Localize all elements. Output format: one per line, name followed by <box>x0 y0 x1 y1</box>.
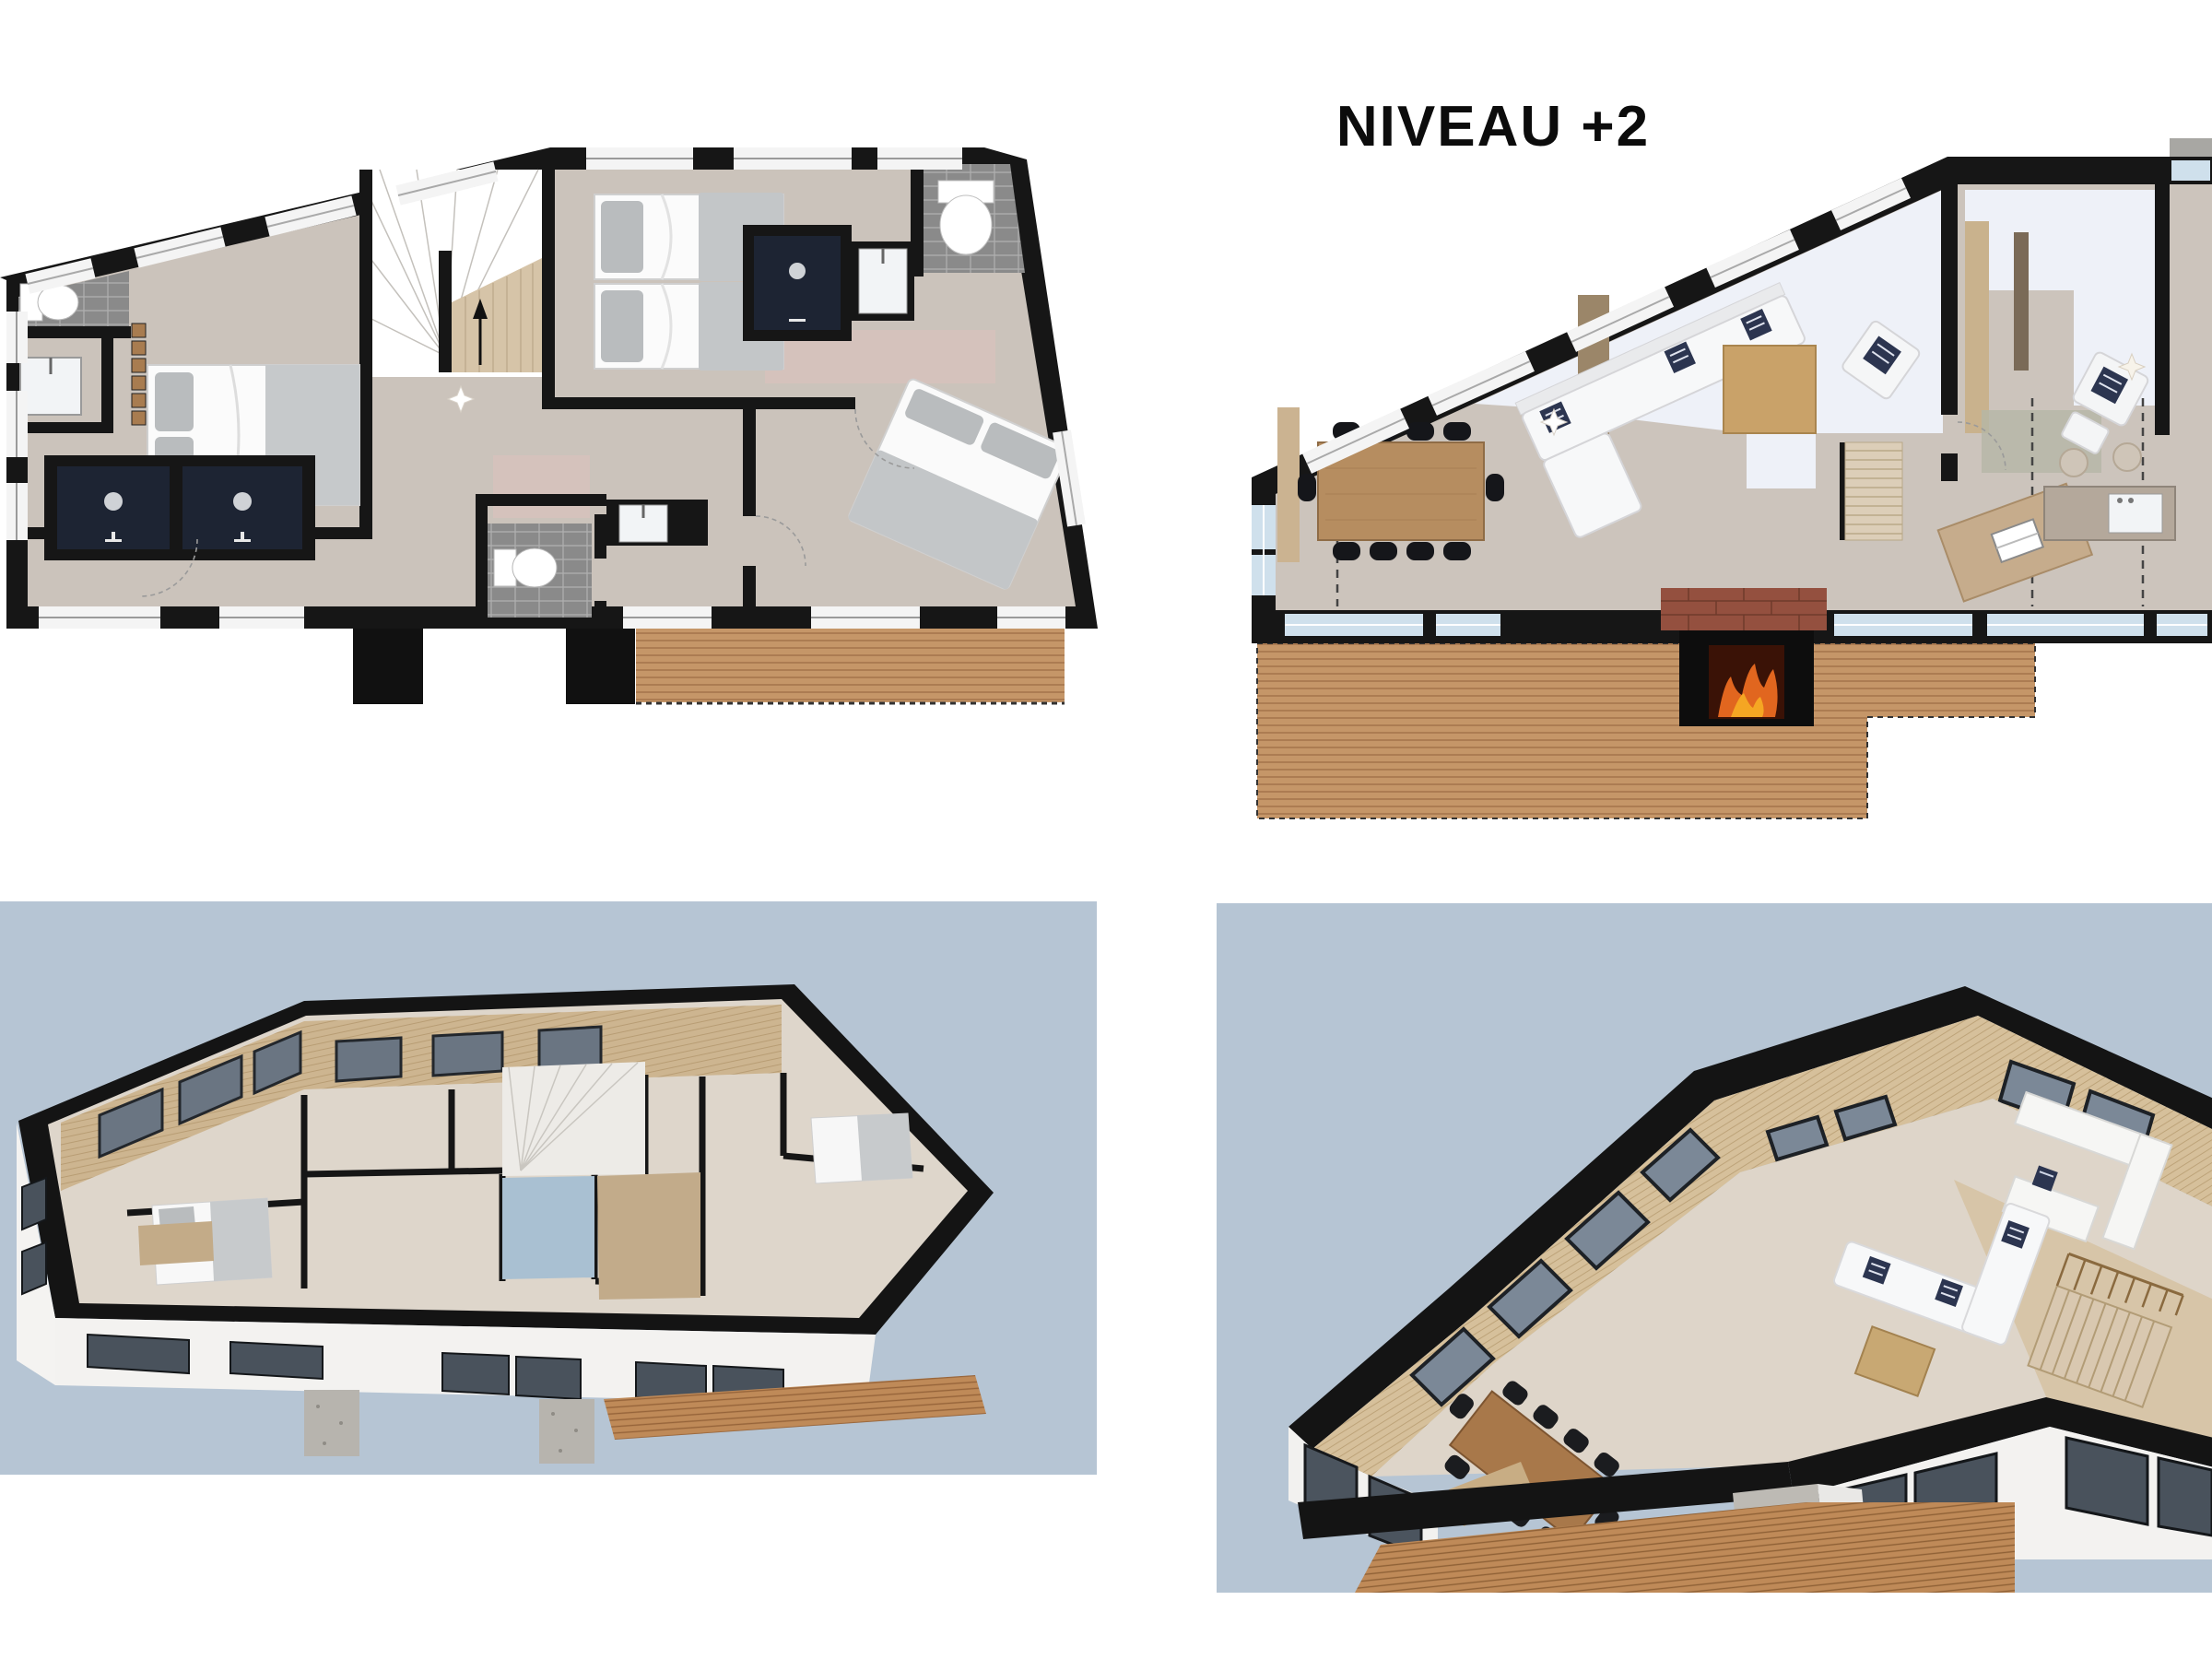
stairs-down <box>1840 442 1902 540</box>
sink-icon <box>852 241 914 321</box>
corner-shower <box>743 225 852 341</box>
hall-wood-floor <box>597 1172 700 1300</box>
wood-deck <box>636 629 1065 703</box>
render-3d-living-level <box>1217 903 2212 1594</box>
toilet-icon <box>938 181 994 254</box>
shower-cabins <box>44 455 315 560</box>
bed <box>811 1113 912 1183</box>
sink-icon <box>606 500 708 546</box>
coffee-table <box>1724 346 1816 433</box>
toilet-icon <box>494 548 557 587</box>
sink-icon <box>20 358 81 415</box>
floor-plan-sheet: NIVEAU +2 <box>0 0 2212 1659</box>
plan-2d-living-level <box>1244 129 2212 829</box>
wood-deck <box>1257 643 2035 818</box>
stairwell-void <box>502 1176 594 1279</box>
dresser <box>138 1221 214 1265</box>
support-pillars <box>353 629 635 704</box>
plan-2d-sleeping-level <box>0 88 1106 719</box>
staircase <box>371 170 542 377</box>
fireplace-icon <box>1661 588 1827 726</box>
render-3d-sleeping-level <box>0 901 1099 1477</box>
